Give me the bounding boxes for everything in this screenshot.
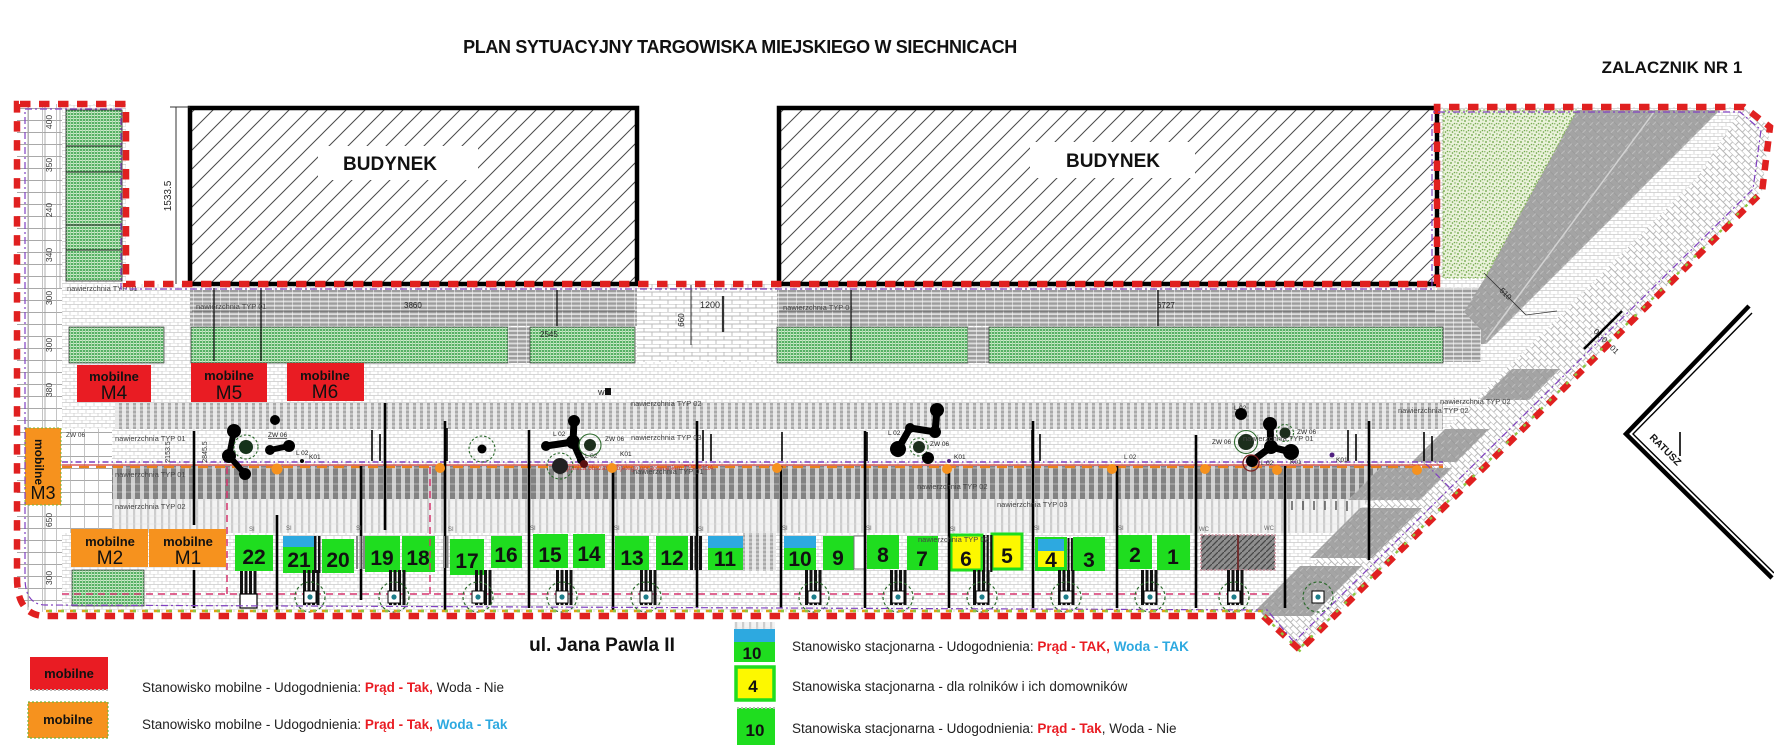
svg-text:nawierzchnia TYP 03: nawierzchnia TYP 03 xyxy=(631,433,702,442)
svg-text:2: 2 xyxy=(1129,544,1141,567)
svg-text:2845.5: 2845.5 xyxy=(202,441,209,463)
svg-text:L 02: L 02 xyxy=(1261,460,1274,467)
svg-text:nawierzchnia TYP 02: nawierzchnia TYP 02 xyxy=(917,482,988,491)
svg-text:Stanowiska stacjonarna - Udogo: Stanowiska stacjonarna - Udogodnienia: P… xyxy=(792,721,1176,736)
svg-text:Stanowiska stacjonarna - dla r: Stanowiska stacjonarna - dla rolników i … xyxy=(792,679,1128,694)
svg-text:10: 10 xyxy=(788,548,811,571)
svg-text:7: 7 xyxy=(916,548,928,571)
svg-text:1533.5: 1533.5 xyxy=(163,180,174,211)
svg-text:nawierzchnia TYP 02: nawierzchnia TYP 02 xyxy=(1440,397,1511,406)
svg-text:K01: K01 xyxy=(620,451,632,458)
svg-text:nawierzchnia TYP 02: nawierzchnia TYP 02 xyxy=(918,535,989,544)
svg-text:SI: SI xyxy=(1034,526,1040,532)
svg-text:2153.5: 2153.5 xyxy=(165,441,172,463)
svg-text:1: 1 xyxy=(1167,546,1179,569)
svg-text:400: 400 xyxy=(44,115,54,129)
svg-text:mobilne: mobilne xyxy=(163,534,213,549)
svg-text:3: 3 xyxy=(1083,549,1095,572)
svg-text:350: 350 xyxy=(44,158,54,172)
svg-text:5: 5 xyxy=(1001,545,1013,568)
svg-text:mobilne: mobilne xyxy=(204,368,254,383)
svg-text:L 02: L 02 xyxy=(296,450,309,457)
svg-text:4: 4 xyxy=(1045,549,1057,572)
svg-text:K01: K01 xyxy=(309,454,321,461)
svg-text:SI: SI xyxy=(530,526,536,532)
svg-text:nawierzchnia TYP 01: nawierzchnia TYP 01 xyxy=(196,302,267,311)
svg-text:11: 11 xyxy=(714,548,737,571)
svg-text:2545: 2545 xyxy=(540,330,558,339)
svg-text:nawierzchnia TYP 02: nawierzchnia TYP 02 xyxy=(1398,406,1469,415)
svg-text:SI: SI xyxy=(448,527,454,533)
svg-text:650: 650 xyxy=(44,513,54,527)
svg-text:nawierzchnia TYP 01: nawierzchnia TYP 01 xyxy=(115,434,186,443)
svg-text:10: 10 xyxy=(743,644,762,663)
svg-text:300: 300 xyxy=(44,338,54,352)
svg-text:SI: SI xyxy=(249,527,255,533)
svg-text:K01: K01 xyxy=(1336,457,1348,464)
svg-text:15: 15 xyxy=(538,544,562,567)
svg-text:M5: M5 xyxy=(216,383,242,404)
svg-text:WC: WC xyxy=(1199,527,1210,533)
svg-text:340: 340 xyxy=(44,248,54,262)
svg-text:660: 660 xyxy=(677,313,686,327)
svg-text:K01: K01 xyxy=(1290,459,1302,466)
svg-text:SI: SI xyxy=(356,526,362,532)
svg-text:WC: WC xyxy=(1264,526,1275,532)
svg-text:300: 300 xyxy=(44,291,54,305)
svg-text:9: 9 xyxy=(832,547,844,570)
svg-text:6: 6 xyxy=(960,548,972,571)
svg-text:L 02: L 02 xyxy=(553,431,566,438)
svg-text:6727: 6727 xyxy=(1157,301,1175,310)
svg-text:L 02: L 02 xyxy=(888,430,901,437)
svg-text:SI: SI xyxy=(782,526,788,532)
svg-text:3860: 3860 xyxy=(404,301,422,310)
svg-text:SI: SI xyxy=(950,527,956,533)
svg-text:19: 19 xyxy=(370,547,393,570)
svg-text:mobilne: mobilne xyxy=(85,534,135,549)
svg-text:nawierzchnia TYP 02: nawierzchnia TYP 02 xyxy=(631,399,702,408)
svg-text:Stanowisko stacjonarna - Udogo: Stanowisko stacjonarna - Udogodnienia: P… xyxy=(792,639,1189,654)
svg-text:ZW 06: ZW 06 xyxy=(605,436,625,443)
svg-text:SI: SI xyxy=(286,526,292,532)
svg-text:4: 4 xyxy=(748,677,758,696)
svg-text:nawierzchnia TYP 03: nawierzchnia TYP 03 xyxy=(997,500,1068,509)
svg-text:M4: M4 xyxy=(101,383,128,404)
svg-text:L 02: L 02 xyxy=(585,453,598,460)
svg-text:Stanowisko mobilne - Udogodnie: Stanowisko mobilne - Udogodnienia: Prąd … xyxy=(142,680,504,695)
svg-text:W: W xyxy=(598,390,605,397)
svg-text:18: 18 xyxy=(406,547,430,570)
svg-text:L 02: L 02 xyxy=(1124,454,1137,461)
svg-text:240: 240 xyxy=(44,203,54,217)
svg-text:17: 17 xyxy=(455,550,478,573)
svg-text:ZW 06: ZW 06 xyxy=(268,432,288,439)
svg-text:380: 380 xyxy=(44,383,54,397)
svg-text:mobilne: mobilne xyxy=(300,368,350,383)
svg-text:ZW 06: ZW 06 xyxy=(930,441,950,448)
svg-text:1200: 1200 xyxy=(700,300,720,310)
svg-text:nawierzchnia TYP 01: nawierzchnia TYP 01 xyxy=(783,303,854,312)
svg-text:BUDYNEK: BUDYNEK xyxy=(343,154,437,175)
svg-text:mobilne: mobilne xyxy=(32,439,46,485)
svg-text:22: 22 xyxy=(242,546,265,569)
svg-text:SI: SI xyxy=(698,527,704,533)
svg-text:ul. Jana Pawla II: ul. Jana Pawla II xyxy=(529,635,675,656)
svg-text:mobilne: mobilne xyxy=(89,369,139,384)
svg-text:Stanowisko mobilne - Udogodnie: Stanowisko mobilne - Udogodnienia: Prąd … xyxy=(142,717,508,732)
svg-text:14: 14 xyxy=(577,543,601,566)
svg-text:21: 21 xyxy=(287,549,311,572)
svg-text:ZW 06: ZW 06 xyxy=(1212,439,1232,446)
svg-text:nawierzchnia TYP 01: nawierzchnia TYP 01 xyxy=(633,467,704,476)
svg-text:16: 16 xyxy=(494,544,517,567)
svg-text:M6: M6 xyxy=(312,382,338,403)
svg-text:ZW 06: ZW 06 xyxy=(66,432,86,439)
svg-text:SI: SI xyxy=(866,526,872,532)
svg-text:20: 20 xyxy=(326,549,349,572)
svg-text:SI: SI xyxy=(1118,526,1124,532)
svg-text:K01: K01 xyxy=(954,454,966,461)
svg-text:mobilne: mobilne xyxy=(43,712,93,727)
svg-text:10: 10 xyxy=(746,721,765,740)
svg-text:mobilne: mobilne xyxy=(44,666,94,681)
svg-text:13: 13 xyxy=(620,547,643,570)
svg-text:300: 300 xyxy=(44,571,54,585)
svg-text:M1: M1 xyxy=(175,548,201,569)
svg-text:M3: M3 xyxy=(30,483,55,503)
svg-text:BUDYNEK: BUDYNEK xyxy=(1066,151,1160,172)
svg-text:nawierzchnia TYP 02: nawierzchnia TYP 02 xyxy=(115,502,186,511)
svg-text:PLAN SYTUACYJNY TARGOWISKA MIE: PLAN SYTUACYJNY TARGOWISKA MIEJSKIEGO W … xyxy=(463,37,1017,57)
svg-text:SI: SI xyxy=(614,526,620,532)
svg-text:nawierzchnia TYP 01: nawierzchnia TYP 01 xyxy=(1243,434,1314,443)
svg-text:8: 8 xyxy=(877,544,889,567)
svg-text:M2: M2 xyxy=(97,548,123,569)
svg-text:nawierzchnia TYP 01: nawierzchnia TYP 01 xyxy=(115,470,186,479)
svg-text:ZALACZNIK NR 1: ZALACZNIK NR 1 xyxy=(1602,58,1743,77)
svg-text:12: 12 xyxy=(660,547,683,570)
